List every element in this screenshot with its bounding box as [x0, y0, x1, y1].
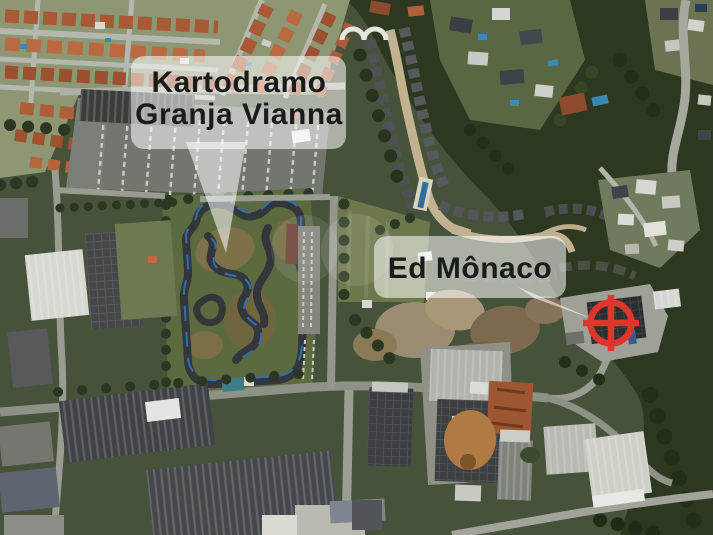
callout-ed-monaco-label: Ed Mônaco [388, 252, 553, 285]
callout-kartodromo-line2: Granja Vianna [135, 98, 343, 131]
callout-kartodromo-line1: Kartodramo [151, 66, 326, 99]
satellite-map: Kartodramo Granja Vianna Ed Mônaco [0, 0, 713, 535]
aerial-map-screenshot: Kartodramo Granja Vianna Ed Mônaco [0, 0, 713, 535]
